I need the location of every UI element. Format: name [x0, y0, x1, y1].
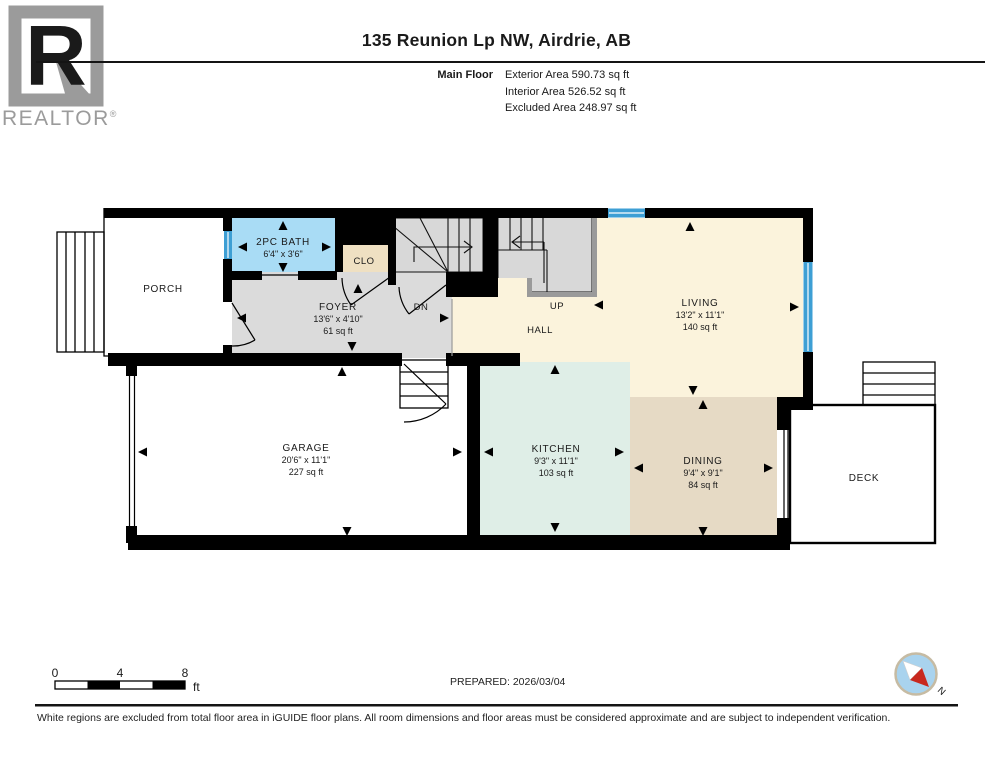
hall-area	[452, 297, 597, 362]
exterior-area-stat: Exterior Area 590.73 sq ft	[505, 69, 629, 81]
room-area-dining: 84 sq ft	[688, 480, 718, 490]
floor-label: Main Floor	[368, 69, 493, 81]
room-label-living: LIVING	[682, 298, 719, 309]
interior-area-stat: Interior Area 526.52 sq ft	[505, 86, 625, 98]
compass-north-label: N	[935, 685, 948, 698]
garage-stairs	[400, 360, 448, 422]
room-label-deck: DECK	[849, 473, 880, 484]
room-dims-dining: 9'4" x 9'1"	[683, 468, 722, 478]
garage-door	[130, 376, 135, 526]
deck-sliding-door	[784, 430, 788, 518]
floorplan-page: PORCH 2PC BATH 6'4" x 3'6" CLO FOYER 13'…	[0, 0, 993, 768]
room-label-porch: PORCH	[143, 284, 183, 295]
stairs-up-label: UP	[550, 301, 564, 312]
realtor-wordmark-text: REALTOR	[2, 107, 110, 130]
stairs-down-label: DN	[414, 302, 429, 313]
realtor-logo: R	[8, 5, 104, 107]
porch-steps	[57, 232, 104, 352]
logo-letter: R	[25, 9, 86, 104]
scale-tick-8: 8	[182, 666, 189, 680]
footer-divider	[35, 704, 958, 707]
room-dims-living: 13'2" x 11'1"	[676, 310, 725, 320]
staircase-up	[498, 215, 597, 297]
floorplan-canvas: PORCH 2PC BATH 6'4" x 3'6" CLO FOYER 13'…	[0, 0, 993, 768]
scale-bar: 0 4 8 ft	[52, 666, 201, 694]
scale-unit: ft	[193, 680, 200, 694]
disclaimer-text: White regions are excluded from total fl…	[37, 712, 967, 724]
room-label-kitchen: KITCHEN	[532, 444, 581, 455]
page-title: 135 Reunion Lp NW, Airdrie, AB	[0, 30, 993, 51]
scale-tick-0: 0	[52, 666, 59, 680]
room-area-kitchen: 103 sq ft	[539, 468, 574, 478]
room-area-garage: 227 sq ft	[289, 467, 324, 477]
room-dims-foyer: 13'6" x 4'10"	[313, 314, 362, 324]
room-area-living: 140 sq ft	[683, 322, 718, 332]
room-label-dining: DINING	[683, 456, 722, 467]
header-divider	[36, 61, 985, 63]
room-label-garage: GARAGE	[283, 443, 330, 454]
room-label-hall: HALL	[527, 325, 553, 336]
room-label-foyer: FOYER	[319, 302, 357, 313]
staircase-down	[393, 218, 483, 272]
room-area-foyer: 61 sq ft	[323, 326, 353, 336]
porch-outline	[57, 208, 223, 356]
room-label-bath: 2PC BATH	[256, 237, 310, 248]
prepared-date: PREPARED: 2026/03/04	[450, 676, 565, 688]
room-label-closet: CLO	[353, 256, 374, 267]
excluded-area-stat: Excluded Area 248.97 sq ft	[505, 102, 636, 114]
registered-mark: ®	[110, 109, 118, 119]
compass: N	[896, 654, 948, 698]
room-dims-bath: 6'4" x 3'6"	[263, 249, 302, 259]
realtor-wordmark: REALTOR®	[2, 107, 118, 131]
room-dims-kitchen: 9'3" x 11'1"	[534, 456, 578, 466]
room-dims-garage: 20'6" x 11'1"	[282, 455, 331, 465]
scale-tick-4: 4	[117, 666, 124, 680]
